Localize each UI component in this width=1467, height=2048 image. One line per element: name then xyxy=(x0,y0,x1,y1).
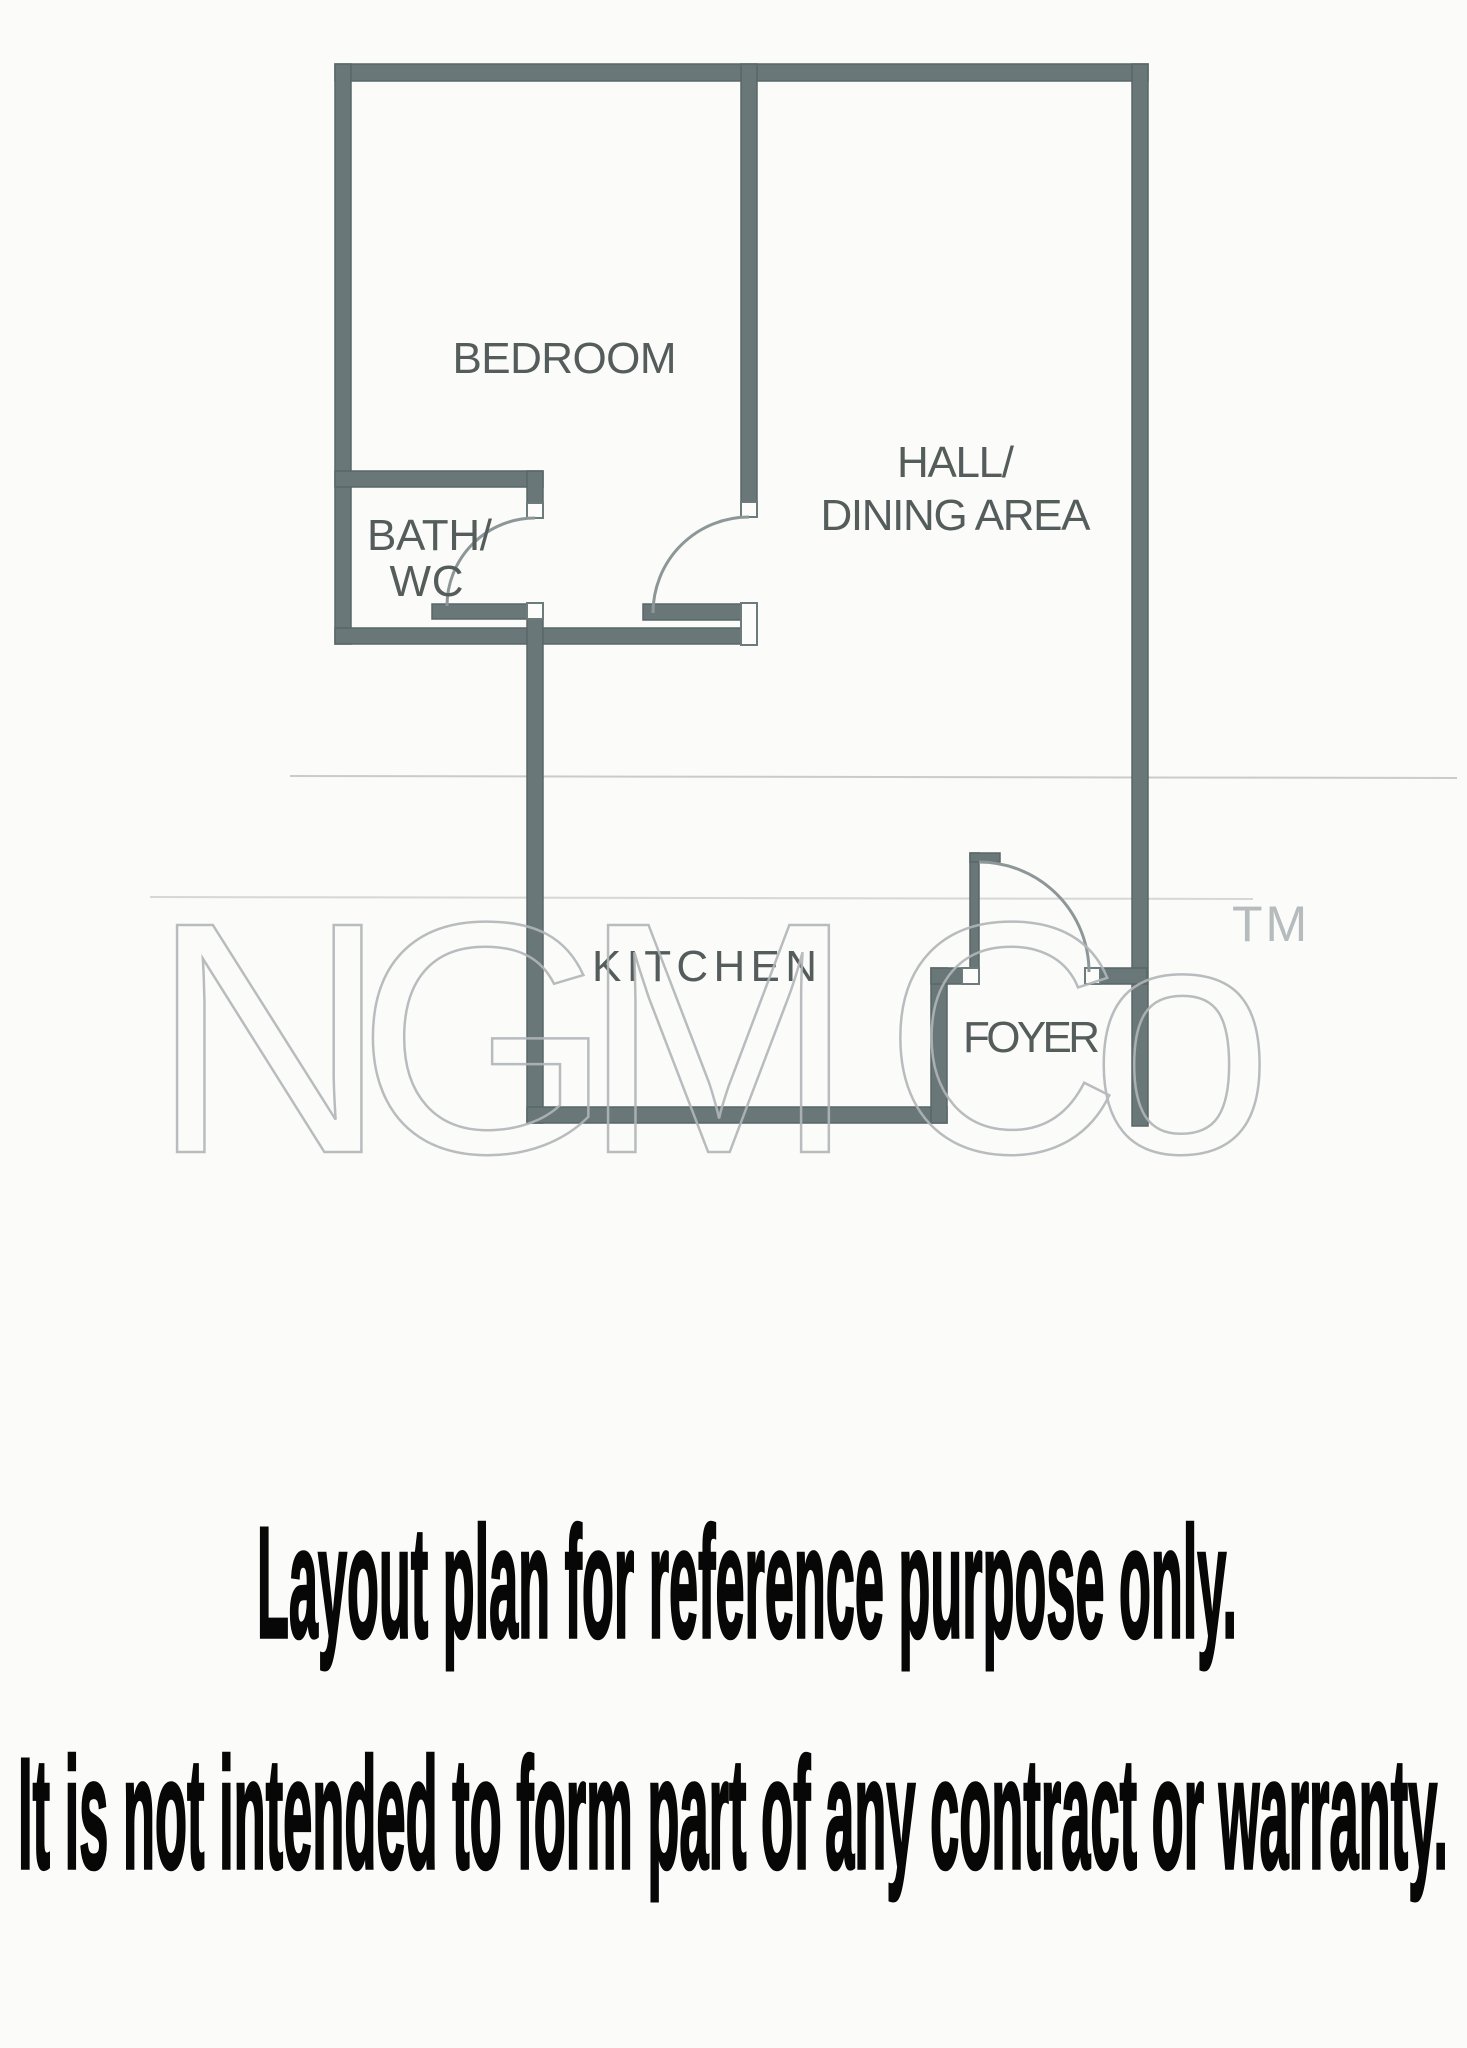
disclaimer-line1: Layout plan for reference purpose only. xyxy=(257,1495,1237,1671)
wall-bath-top xyxy=(335,471,543,487)
room-label-bath-line2: WC xyxy=(390,557,465,606)
wall-bath-right-stub xyxy=(527,471,543,505)
disclaimer-line2: It is not intended to form part of any c… xyxy=(18,1726,1448,1902)
door-jamb xyxy=(527,603,543,619)
wall-bedroom-hall-partition xyxy=(741,64,757,504)
scanned-floor-plan-page: BEDROOM HALL/ DINING AREA BATH/ WC KITCH… xyxy=(0,0,1467,2048)
watermark-tm-mark: TM xyxy=(1232,896,1310,952)
door-jamb xyxy=(527,503,543,518)
room-label-bedroom: BEDROOM xyxy=(453,334,678,383)
room-label-bath-line1: BATH/ xyxy=(367,511,493,560)
wall-outer-left xyxy=(335,64,351,644)
scan-artifact-line xyxy=(290,776,1457,778)
bedroom-door-leaf xyxy=(643,604,757,620)
room-label-hall-line1: HALL/ xyxy=(897,438,1015,487)
wall-bedroom-bottom xyxy=(335,628,757,644)
room-label-hall-line2: DINING AREA xyxy=(821,491,1092,540)
watermark-text: NGM Co xyxy=(150,853,1260,1222)
watermark: NGM Co TM xyxy=(150,853,1310,1222)
bedroom-door-swing-arc xyxy=(653,517,749,613)
door-jamb xyxy=(741,603,757,645)
disclaimer: Layout plan for reference purpose only. … xyxy=(18,1495,1448,1902)
door-jamb xyxy=(741,502,757,517)
